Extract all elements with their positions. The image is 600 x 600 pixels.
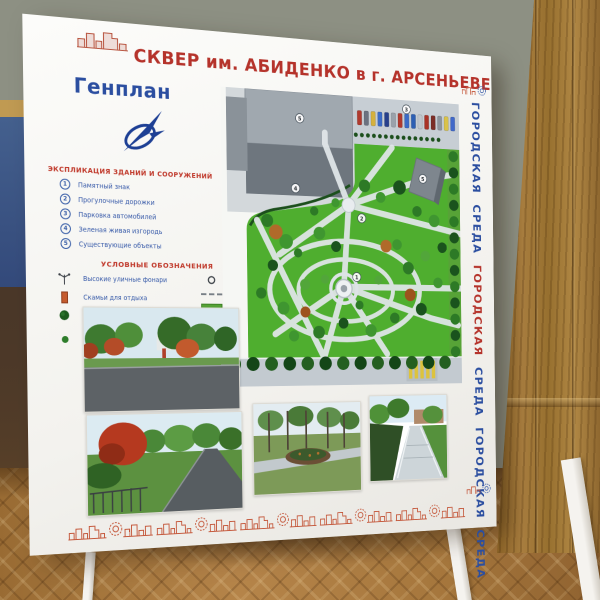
- side-strip-text: ГОРОДСКАЯ СРЕДА ГОРОДСКАЯ СРЕДА ГОРОДСКА…: [470, 102, 484, 478]
- parked-car: [418, 115, 423, 130]
- parked-car: [364, 111, 369, 126]
- legend-label: Высокие уличные фонари: [83, 275, 167, 284]
- legend-heading: УСЛОВНЫЕ ОБОЗНАЧЕНИЯ: [101, 260, 213, 271]
- map-label-parking: 3: [405, 107, 408, 114]
- aviation-logo-icon: [112, 102, 172, 160]
- shrub-icon: [52, 335, 77, 344]
- explication-label: Существующие объекты: [79, 240, 162, 250]
- map-label-paths: 2: [360, 216, 363, 222]
- side-strip-word: СРЕДА: [472, 367, 484, 417]
- parked-car: [357, 110, 362, 125]
- side-strip-word: ГОРОДСКАЯ: [469, 102, 481, 195]
- explication-label: Прогулочные дорожки: [78, 196, 155, 207]
- city-skyline-icon: [77, 26, 128, 52]
- strip-emblem-bottom: [466, 482, 492, 495]
- side-strip: ГОРОДСКАЯ СРЕДА ГОРОДСКАЯ СРЕДА ГОРОДСКА…: [460, 83, 494, 518]
- building-annex: [226, 96, 248, 171]
- photo-street-view: [82, 306, 240, 412]
- plan-label: Генплан: [74, 74, 171, 104]
- side-strip-word: СРЕДА: [474, 529, 486, 579]
- map-label-memorial: 1: [355, 275, 358, 281]
- explication-item: 3Парковка автомобилей: [60, 208, 234, 225]
- parked-car: [444, 116, 448, 130]
- sidewalk-fence-icon: [200, 293, 223, 295]
- explication-number: 3: [60, 208, 71, 219]
- parked-car: [411, 114, 416, 129]
- side-strip-word: СРЕДА: [470, 204, 482, 254]
- explication-list: 1Памятный знак2Прогулочные дорожки3Парко…: [60, 178, 235, 256]
- explication-number: 4: [60, 223, 71, 234]
- parked-car: [424, 115, 429, 129]
- map-label-existing-building: 5: [298, 116, 302, 123]
- park-plan-poster: СКВЕР им. АБИДЕНКО в г. АРСЕНЬЕВЕ Генпла…: [22, 14, 496, 556]
- parked-car: [384, 112, 389, 127]
- photo-park-alley: [86, 411, 244, 517]
- bench-icon: [51, 291, 76, 303]
- explication-label: Парковка автомобилей: [78, 210, 156, 221]
- park-lamp-icon: [200, 275, 223, 285]
- explication-number: 1: [60, 178, 71, 189]
- street-lamp-icon: [51, 272, 76, 285]
- legend-item: Скамьи для отдыха: [51, 291, 191, 304]
- side-strip-word: ГОРОДСКАЯ: [471, 265, 483, 357]
- parked-car: [404, 114, 409, 129]
- door-groove: [535, 0, 538, 553]
- door-rail: [497, 398, 600, 407]
- parked-car: [437, 116, 441, 130]
- explication-item: 5Существующие объекты: [60, 238, 234, 253]
- parked-car: [450, 117, 454, 131]
- legend-item: Высокие уличные фонари: [51, 272, 191, 287]
- photo-scene: СКВЕР им. АБИДЕНКО в г. АРСЕНЬЕВЕ Генпла…: [0, 0, 600, 600]
- wooden-door: [497, 0, 600, 553]
- strip-emblem-top: [461, 84, 487, 97]
- parked-car: [398, 113, 403, 128]
- side-strip-word: ГОРОДСКАЯ: [473, 427, 485, 519]
- explication-item: 4Зеленая живая изгородь: [60, 223, 234, 239]
- explication-number: 5: [60, 238, 71, 249]
- parked-car: [391, 113, 396, 128]
- explication-number: 2: [60, 193, 71, 204]
- poster-title: СКВЕР им. АБИДЕНКО в г. АРСЕНЬЕВЕ: [133, 45, 491, 94]
- map-label-existing-small: 5: [421, 176, 424, 182]
- photo-park-planter: [252, 401, 361, 496]
- explication-label: Зеленая живая изгородь: [79, 225, 163, 235]
- photo-walkway-render: [369, 394, 448, 482]
- explication-label: Памятный знак: [78, 181, 130, 191]
- legend-label: Скамьи для отдыха: [83, 294, 147, 303]
- map-label-hedge: 4: [294, 186, 298, 193]
- parked-car: [371, 111, 376, 126]
- deciduous-tree-icon: [52, 309, 77, 321]
- path-hub: [342, 198, 355, 213]
- park-master-plan-map: 5 3 5 4 2 1: [220, 87, 462, 387]
- parked-car: [431, 116, 435, 130]
- parked-car: [378, 112, 383, 127]
